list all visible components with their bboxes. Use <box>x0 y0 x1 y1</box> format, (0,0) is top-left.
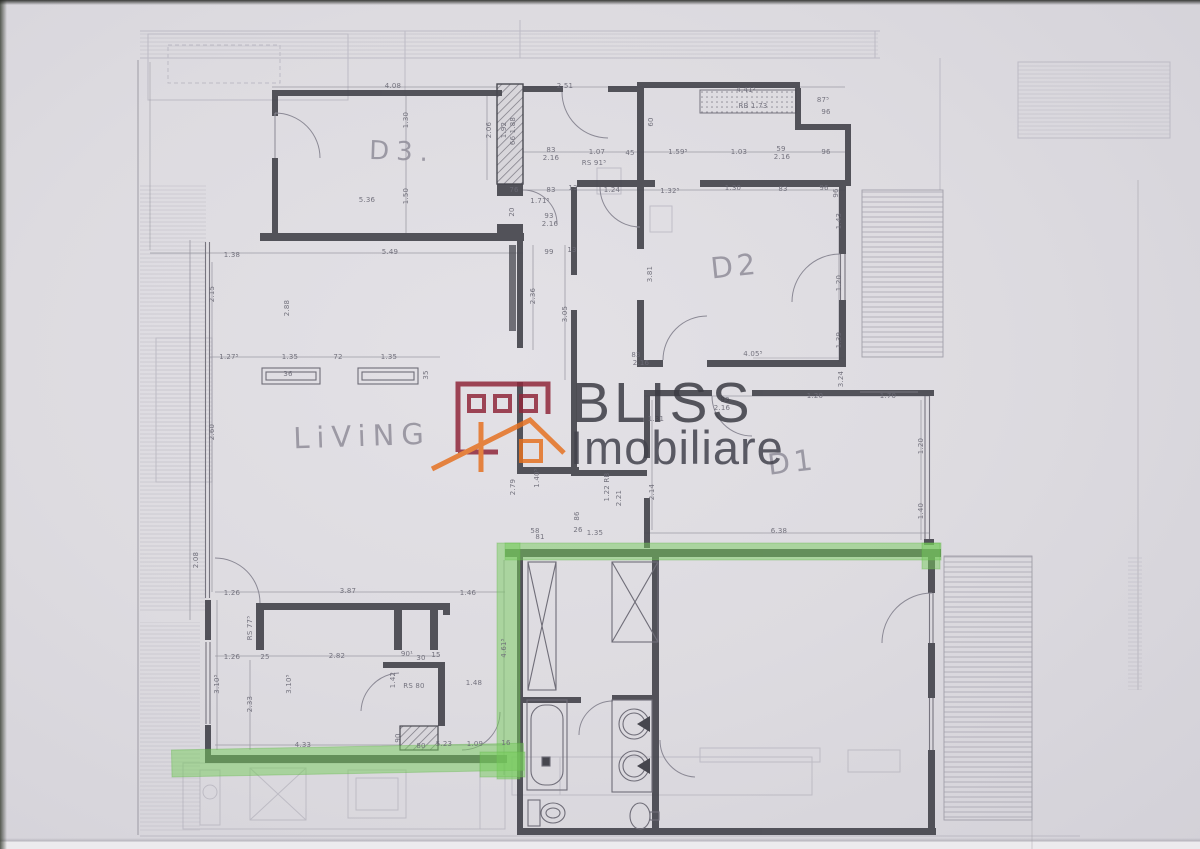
watermark-subtitle-text: Imobiliare <box>570 420 784 475</box>
radiator <box>358 368 418 384</box>
vanity <box>612 700 652 792</box>
bathtub <box>527 700 567 790</box>
agency-watermark: BLISS Imobiliare <box>420 368 810 488</box>
shaft <box>612 562 658 642</box>
windows <box>206 242 934 750</box>
sink <box>619 751 650 781</box>
shaft <box>528 562 556 690</box>
agency-logo-icon <box>420 368 580 488</box>
radiator <box>262 368 320 384</box>
sink <box>619 709 650 739</box>
scanned-floor-plan-page: 4.082.514.41⁵RB 1.739687⁵1.301.502.061.9… <box>0 0 1200 849</box>
toilet <box>528 800 565 826</box>
balconies <box>862 190 1142 849</box>
